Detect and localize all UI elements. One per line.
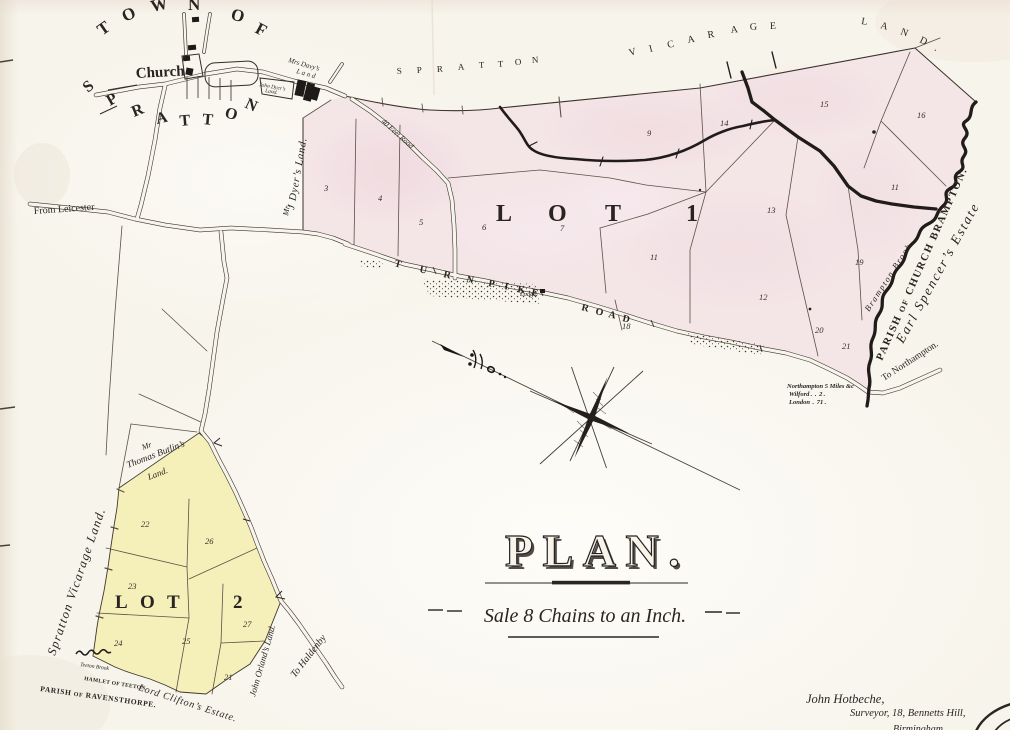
svg-text:24: 24 (114, 638, 123, 648)
svg-text:21: 21 (224, 672, 233, 682)
svg-text:O: O (515, 57, 523, 67)
svg-text:N: N (532, 55, 540, 65)
svg-text:11: 11 (650, 252, 658, 262)
svg-text:13: 13 (767, 205, 776, 215)
svg-text:22: 22 (141, 519, 150, 529)
svg-text:Church: Church (135, 63, 185, 82)
svg-text:19: 19 (855, 257, 864, 267)
svg-text:Wilford . . 2 .: Wilford . . 2 . (789, 391, 826, 398)
svg-text:T: T (179, 112, 191, 130)
svg-text:G: G (749, 22, 757, 33)
svg-text:16: 16 (917, 110, 926, 120)
svg-text:A: A (458, 62, 466, 72)
svg-text:John Hotbeche,: John Hotbeche, (806, 692, 884, 706)
svg-text:3: 3 (323, 183, 328, 193)
svg-text:O: O (140, 592, 155, 613)
svg-text:Sale 8 Chains to an Inch.: Sale 8 Chains to an Inch. (484, 605, 686, 627)
svg-text:N: N (188, 0, 201, 14)
svg-text:Surveyor, 18, Bennetts Hill,: Surveyor, 18, Bennetts Hill, (850, 708, 965, 719)
svg-text:Birmingham.: Birmingham. (893, 724, 946, 730)
svg-text:25: 25 (182, 636, 191, 646)
svg-text:27: 27 (243, 619, 252, 629)
svg-text:5: 5 (419, 217, 423, 227)
svg-text:14: 14 (720, 118, 729, 128)
svg-text:T: T (605, 201, 621, 227)
svg-text:1: 1 (686, 201, 698, 227)
svg-text:23: 23 (128, 581, 137, 591)
svg-text:26: 26 (205, 536, 214, 546)
svg-text:London . 71 .: London . 71 . (788, 399, 827, 406)
svg-text:21: 21 (842, 341, 851, 351)
svg-text:P: P (416, 65, 423, 75)
svg-text:T: T (202, 111, 214, 129)
svg-text:Northampton 5 Miles &c: Northampton 5 Miles &c (786, 383, 854, 390)
svg-text:Lodge: Lodge (519, 291, 536, 298)
svg-text:PLAN.: PLAN. (505, 525, 689, 576)
svg-text:T: T (167, 592, 180, 613)
svg-text:2: 2 (233, 592, 243, 613)
svg-text:L: L (115, 592, 128, 613)
svg-text:18: 18 (622, 321, 631, 331)
svg-text:T: T (479, 60, 486, 70)
svg-text:11: 11 (891, 182, 899, 192)
svg-text:T: T (498, 59, 505, 69)
svg-text:20: 20 (815, 325, 824, 335)
svg-text:15: 15 (820, 99, 829, 109)
svg-text:12: 12 (759, 292, 768, 302)
svg-text:E: E (770, 21, 776, 32)
svg-text:S: S (396, 66, 403, 76)
svg-text:L: L (496, 201, 512, 227)
svg-text:R: R (437, 64, 445, 74)
